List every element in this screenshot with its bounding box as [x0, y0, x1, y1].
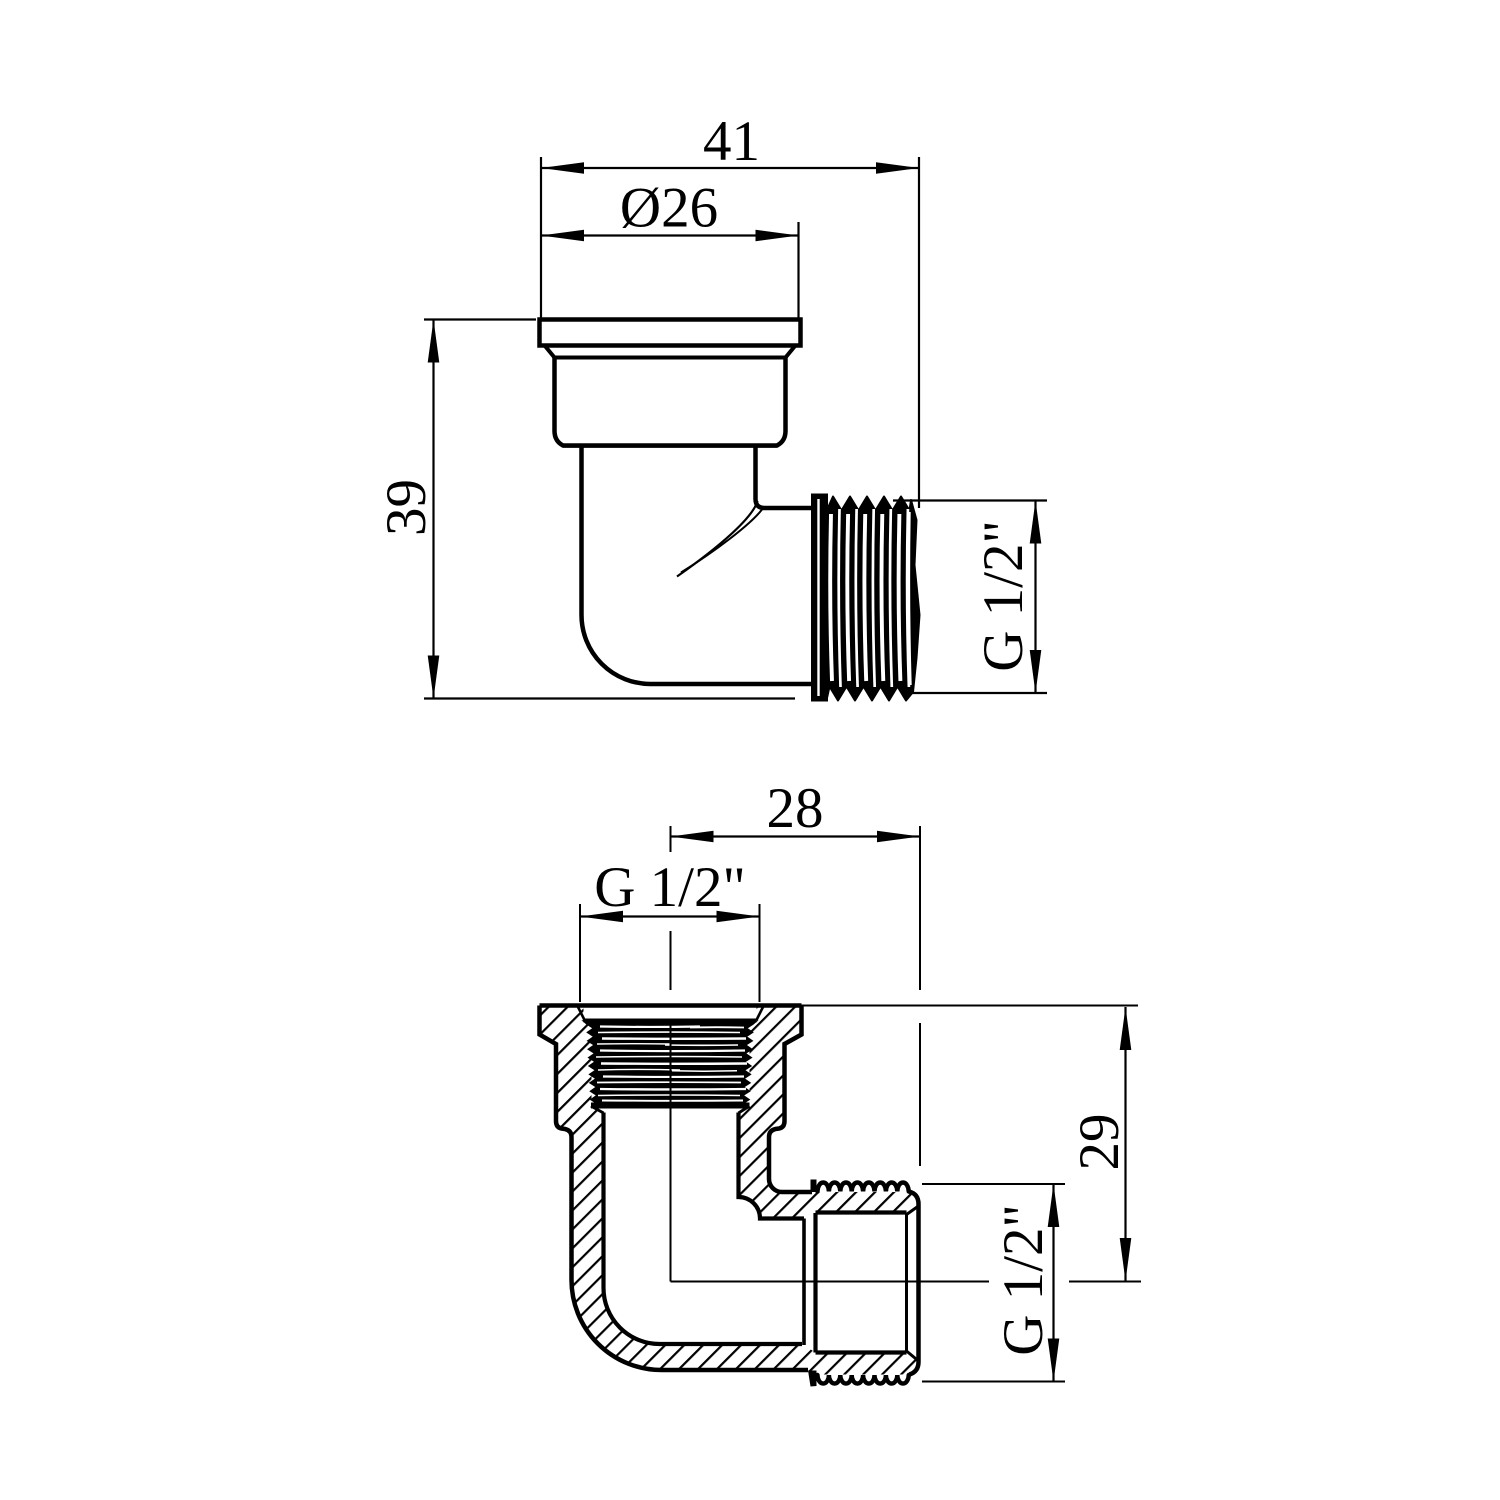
svg-text:G 1/2": G 1/2": [594, 856, 746, 919]
svg-text:29: 29: [1068, 1114, 1131, 1171]
svg-text:28: 28: [767, 777, 824, 840]
svg-text:G 1/2": G 1/2": [992, 1204, 1055, 1356]
svg-text:Ø26: Ø26: [620, 177, 718, 240]
svg-text:39: 39: [375, 479, 438, 536]
svg-text:G 1/2": G 1/2": [972, 520, 1035, 672]
svg-text:41: 41: [703, 110, 760, 173]
